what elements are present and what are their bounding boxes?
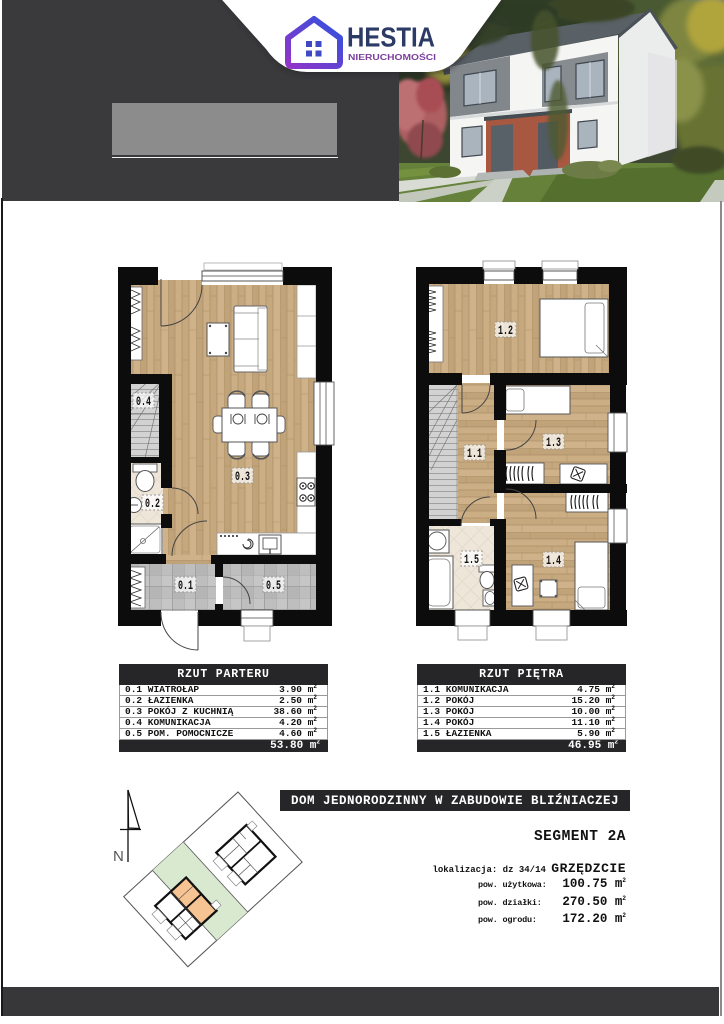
svg-text:1.5: 1.5 [464,552,479,567]
svg-text:1.2: 1.2 [498,323,513,338]
svg-text:1.1: 1.1 [467,446,482,461]
svg-text:0.1: 0.1 [178,578,193,593]
svg-text:0.3: 0.3 [235,469,250,484]
svg-text:0.5: 0.5 [266,578,281,593]
svg-text:N: N [113,848,124,865]
svg-text:0.4: 0.4 [136,394,151,409]
svg-text:0.2: 0.2 [145,496,160,511]
svg-text:1.4: 1.4 [546,553,561,568]
svg-text:1.3: 1.3 [546,435,561,450]
